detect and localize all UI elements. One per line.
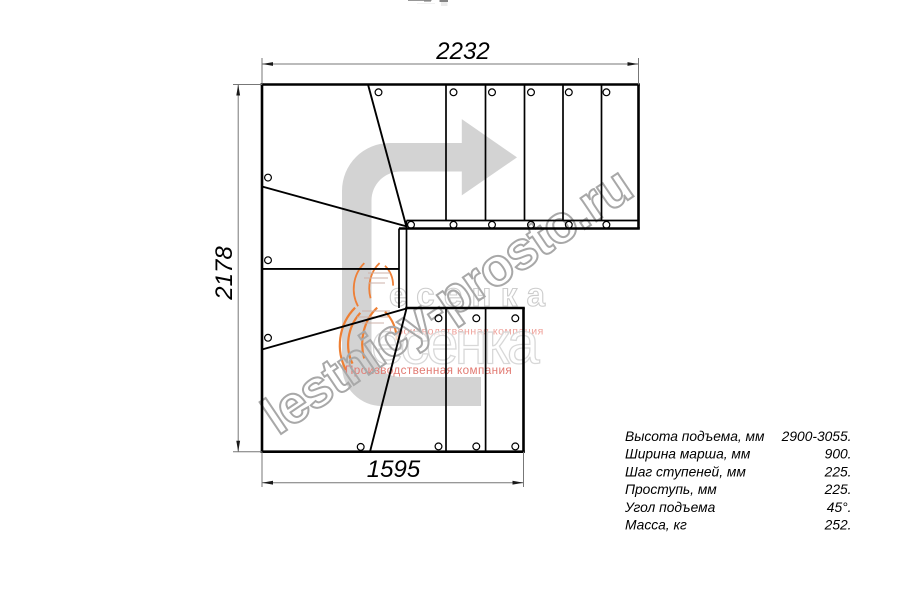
svg-text:Проступь, мм: Проступь, мм: [625, 482, 717, 497]
svg-text:Высота подъема, мм: Высота подъема, мм: [625, 429, 765, 444]
svg-text:900.: 900.: [825, 447, 852, 462]
svg-text:2900-3055.: 2900-3055.: [781, 429, 852, 444]
svg-text:45°.: 45°.: [827, 500, 852, 515]
svg-text:252.: 252.: [824, 518, 852, 533]
svg-text:2232: 2232: [435, 38, 489, 65]
svg-text:1595: 1595: [367, 456, 421, 483]
svg-text:225.: 225.: [824, 482, 852, 497]
svg-text:Масса, кг: Масса, кг: [625, 518, 687, 533]
svg-text:Угол подъема: Угол подъема: [624, 500, 716, 515]
svg-text:2178: 2178: [211, 246, 238, 301]
svg-text:Шаг ступеней, мм: Шаг ступеней, мм: [625, 464, 746, 479]
svg-text:Ширина марша, мм: Ширина марша, мм: [625, 447, 751, 462]
svg-text:225.: 225.: [824, 464, 852, 479]
